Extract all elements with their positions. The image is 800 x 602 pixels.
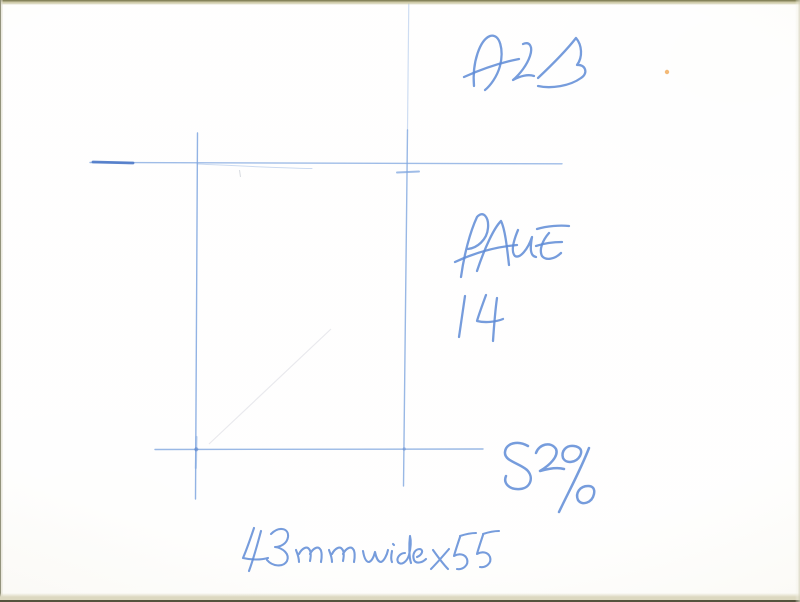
crop-line-top	[90, 163, 562, 164]
small-gray-tick	[240, 170, 241, 177]
smudges	[209, 170, 331, 444]
crop-line-right-vertical-faint	[408, 2, 409, 130]
crop-line-bottom	[155, 449, 483, 450]
size-note-handwriting: 43mm wide x 55	[243, 528, 499, 571]
dust-speck	[665, 70, 669, 74]
scale-annotation: 82%	[505, 443, 594, 512]
measure-tick	[397, 172, 419, 173]
ink-blob-bottom-right-corner	[403, 447, 406, 450]
crop-line-top-dark-segment	[93, 162, 133, 163]
ink-blob-bottom-left-corner	[194, 447, 198, 451]
crop-line-right-vertical	[404, 130, 408, 486]
scanned-sheet: ARTS PAGE 14	[0, 0, 800, 602]
page-number-handwriting: 14	[459, 295, 503, 341]
crop-line-left-vertical-dark	[196, 437, 197, 468]
scribble-annotation: ARTS	[464, 36, 585, 90]
ink-layer: ARTS PAGE 14	[0, 0, 800, 602]
page-word-handwriting: PAGE	[455, 214, 569, 277]
diagonal-scratch	[209, 329, 331, 444]
handwriting-layer: ARTS PAGE 14	[243, 36, 594, 571]
crop-line-top-retrace	[197, 164, 312, 169]
crop-marks	[90, 2, 562, 499]
